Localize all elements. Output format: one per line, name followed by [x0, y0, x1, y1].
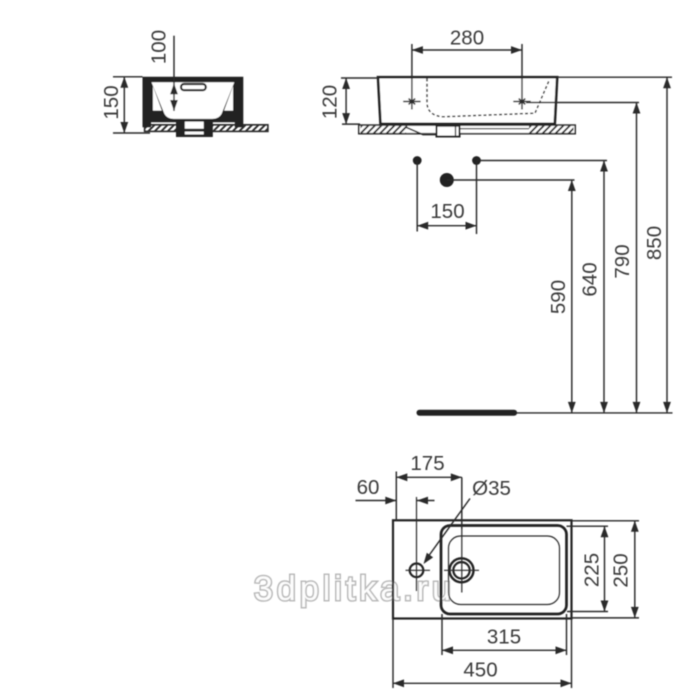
svg-text:590: 590 — [547, 280, 570, 314]
svg-text:100: 100 — [148, 30, 171, 64]
svg-text:315: 315 — [487, 625, 521, 648]
svg-text:640: 640 — [579, 262, 602, 296]
svg-text:120: 120 — [319, 85, 342, 119]
svg-text:450: 450 — [463, 658, 497, 681]
svg-text:790: 790 — [611, 244, 634, 278]
svg-text:850: 850 — [643, 226, 666, 260]
svg-text:3dplitka.ru: 3dplitka.ru — [254, 570, 455, 608]
svg-text:150: 150 — [430, 200, 464, 223]
svg-text:60: 60 — [357, 476, 380, 499]
svg-text:Ø35: Ø35 — [472, 477, 511, 500]
svg-text:150: 150 — [100, 85, 123, 119]
svg-text:250: 250 — [609, 553, 632, 587]
svg-text:225: 225 — [581, 553, 604, 587]
svg-text:175: 175 — [410, 452, 444, 475]
svg-text:280: 280 — [450, 27, 484, 50]
